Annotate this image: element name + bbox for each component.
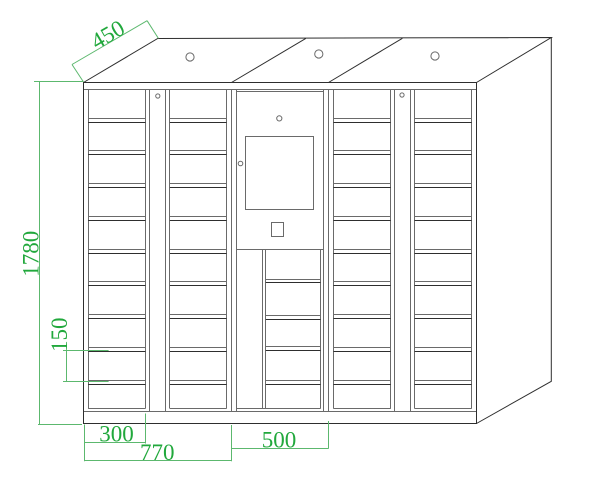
svg-text:770: 770 [140, 440, 175, 465]
svg-text:500: 500 [262, 427, 297, 452]
svg-text:150: 150 [47, 318, 72, 353]
svg-text:1780: 1780 [19, 231, 44, 277]
svg-text:300: 300 [99, 422, 134, 447]
